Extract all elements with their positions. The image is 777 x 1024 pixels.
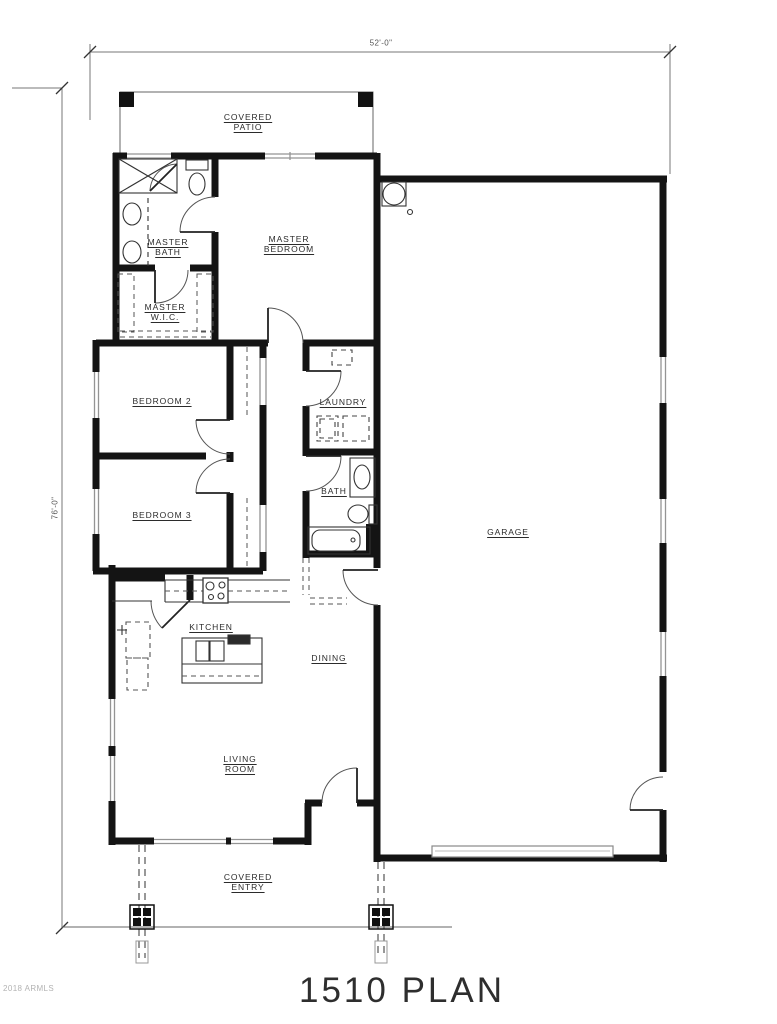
dimension-width-label: 52'-0" (368, 39, 395, 48)
dimension-depth-label: 76'-0" (51, 495, 60, 522)
island-cooktop (228, 635, 250, 644)
doors (150, 164, 663, 810)
front-door-arc (322, 768, 357, 803)
room-label-garage: GARAGE (487, 527, 529, 537)
garage-window (659, 632, 668, 676)
room-label-bedroom-3: BEDROOM 3 (132, 510, 191, 520)
washer-inner (320, 419, 335, 438)
window (108, 699, 117, 746)
dryer (343, 416, 369, 441)
room-label-master-bedroom: MASTER BEDROOM (264, 234, 314, 254)
water-heater (382, 182, 413, 215)
stove (203, 578, 228, 603)
room-label-bedroom-2: BEDROOM 2 (132, 396, 191, 406)
master-bath-door-arc (180, 197, 215, 232)
walls (93, 153, 667, 862)
covered-entry-structure (130, 845, 393, 963)
pantry-door-leaf (162, 600, 190, 628)
window (108, 756, 117, 801)
window (92, 372, 101, 418)
floor-plan-sheet: COVERED PATIO MASTER BATH MASTER BEDROOM… (0, 0, 777, 1024)
island-sink (196, 641, 209, 661)
room-label-living-room: LIVING ROOM (223, 754, 256, 774)
room-label-laundry: LAUNDRY (320, 397, 367, 407)
garage-window (659, 499, 668, 543)
exterior-walls (93, 153, 667, 862)
toilet (348, 505, 377, 524)
window (154, 837, 226, 846)
room-label-master-bath: MASTER BATH (148, 237, 189, 257)
entry-post (130, 905, 154, 929)
island-sink (210, 641, 224, 661)
opening-dashes (303, 558, 347, 604)
refrigerator (126, 622, 150, 690)
garage-door (432, 846, 613, 857)
vanity-sinks (123, 198, 148, 266)
room-label-master-wic: MASTER W.I.C. (145, 302, 186, 322)
garage-fixtures (382, 182, 613, 857)
garage-house-door-arc (343, 570, 378, 605)
room-label-dining: DINING (311, 653, 346, 663)
bath-sink (350, 458, 375, 497)
master-bedroom-door-arc (268, 308, 303, 343)
kitchen-fixtures (112, 578, 290, 690)
kitchen-island (182, 635, 262, 683)
bedroom2-door-arc (196, 420, 230, 454)
garage-window (659, 357, 668, 403)
window (265, 152, 315, 161)
patio-post (119, 92, 134, 107)
post-footing (136, 941, 148, 963)
patio-post (358, 92, 373, 107)
toilet (186, 160, 208, 195)
shower (119, 159, 177, 193)
entry-post (369, 905, 393, 929)
bedroom3-door-arc (196, 459, 230, 493)
watermark: 2018 ARMLS (3, 984, 54, 993)
post-footing (375, 941, 387, 963)
room-label-kitchen: KITCHEN (189, 622, 233, 632)
garage-side-door-arc (630, 777, 663, 810)
pantry-door-arc (151, 601, 162, 628)
wic-door-arc (155, 270, 188, 303)
cabinet (332, 350, 352, 365)
bathtub (308, 527, 370, 554)
room-label-covered-entry: COVERED ENTRY (224, 872, 272, 892)
plan-title: 1510 PLAN (299, 971, 505, 1011)
window (92, 489, 101, 534)
room-label-covered-patio: COVERED PATIO (224, 112, 272, 132)
entry-dashed-lines (139, 845, 384, 958)
room-label-bath: BATH (321, 486, 347, 496)
laundry-fixtures (317, 350, 369, 441)
floor-plan-drawing (0, 0, 777, 1024)
window (231, 837, 273, 846)
